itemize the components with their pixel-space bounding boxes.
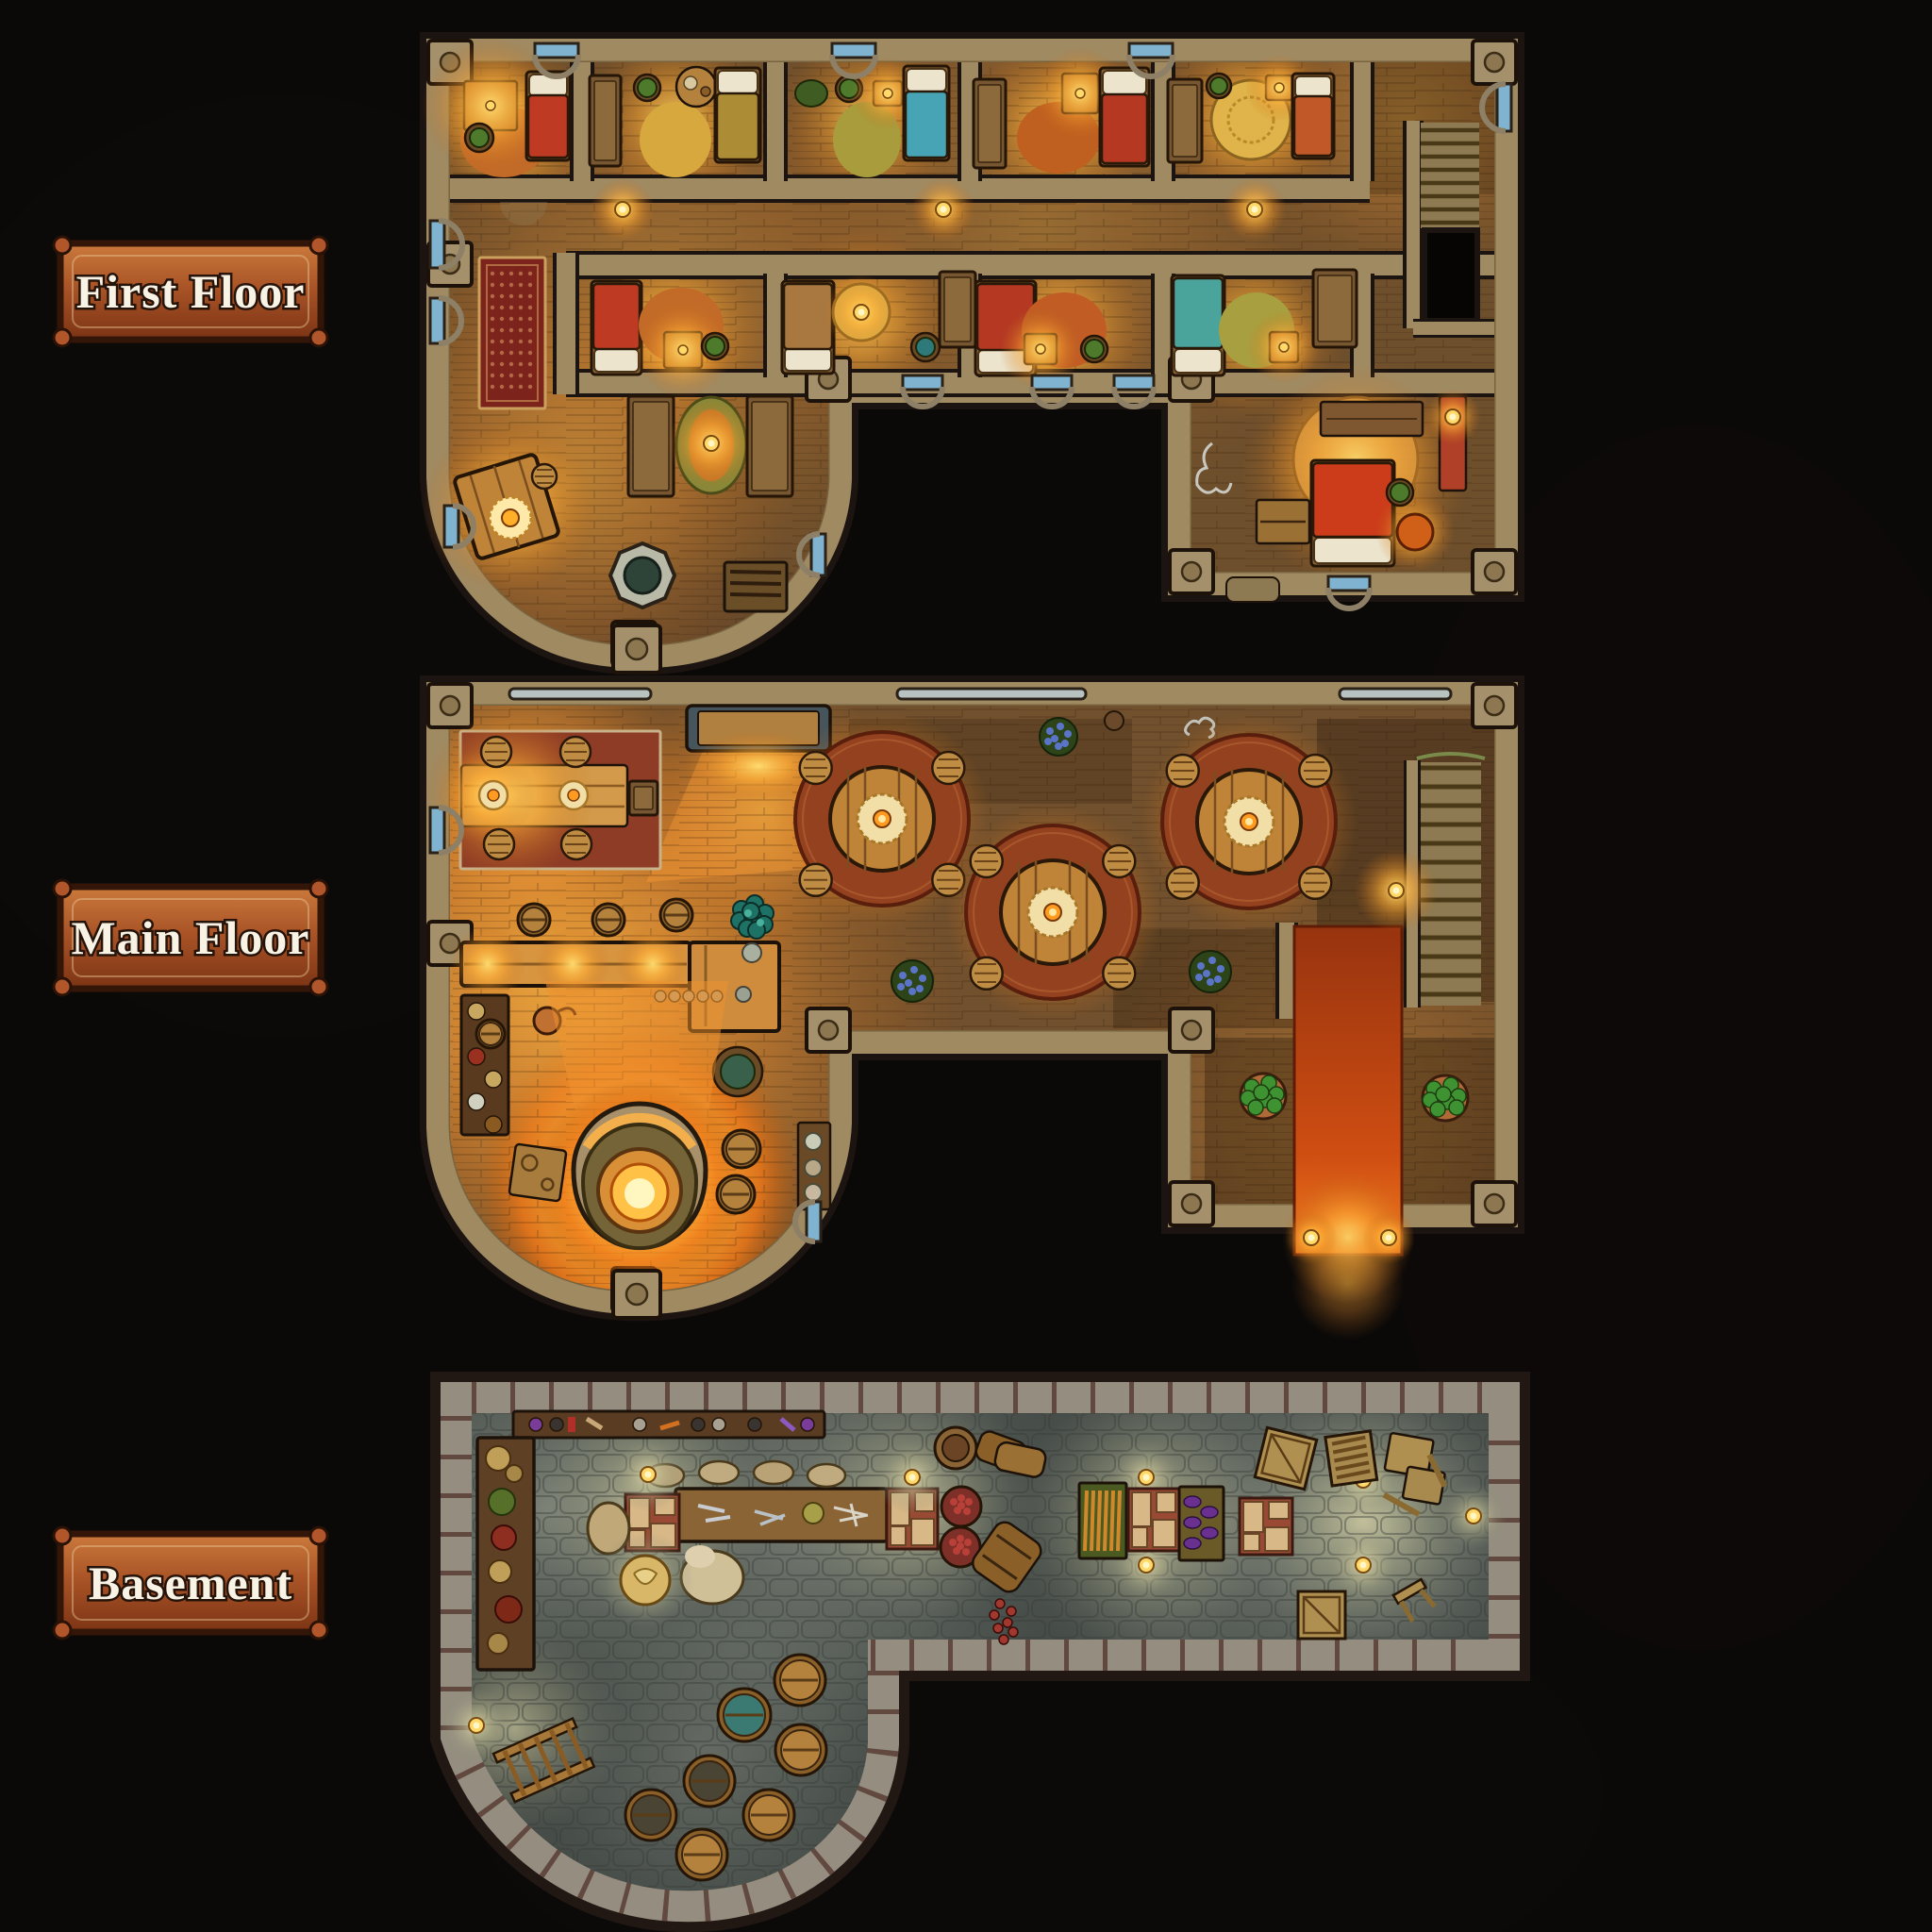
svg-text:Main Floor: Main Floor (71, 911, 309, 964)
svg-text:Basement: Basement (89, 1557, 292, 1609)
svg-text:First Floor: First Floor (76, 265, 306, 318)
